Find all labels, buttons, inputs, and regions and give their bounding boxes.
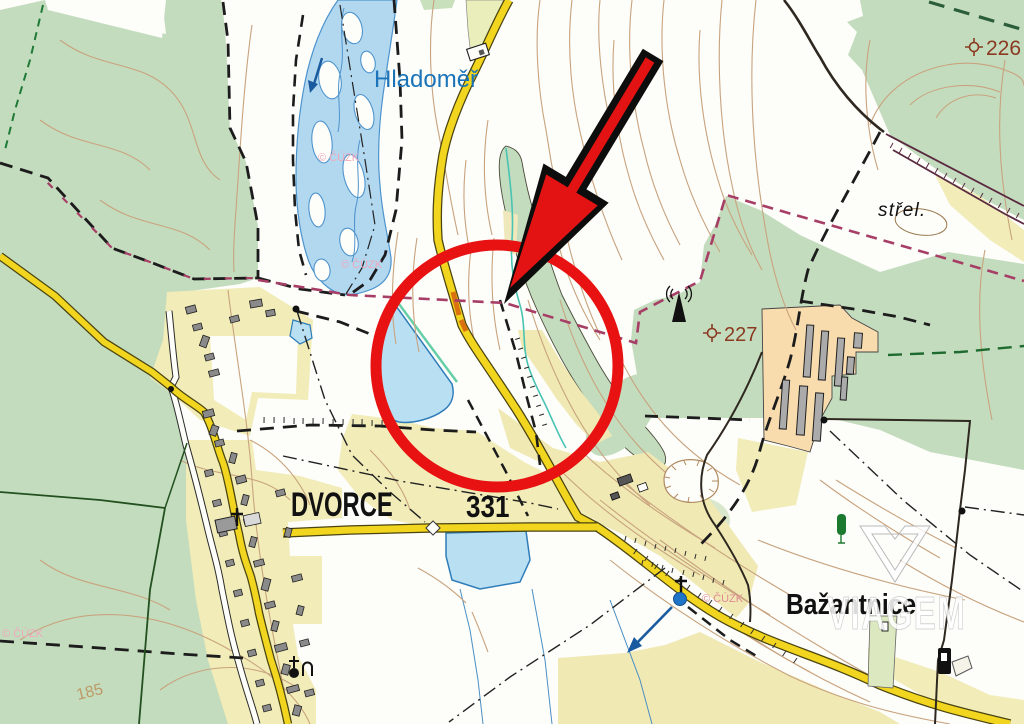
svg-text:© ČÚZK: © ČÚZK	[341, 258, 383, 271]
svg-text:© ČÚZK: © ČÚZK	[702, 592, 744, 605]
svg-text:Hladoměř: Hladoměř	[374, 66, 479, 93]
svg-text:227: 227	[724, 324, 757, 346]
svg-text:střel.: střel.	[878, 200, 926, 221]
svg-text:DVORCE: DVORCE	[291, 486, 393, 524]
svg-text:226: 226	[986, 37, 1021, 60]
svg-text:© ČÚZK: © ČÚZK	[2, 627, 44, 640]
svg-text:VIAGEM: VIAGEM	[827, 589, 966, 639]
svg-text:331: 331	[466, 490, 509, 525]
svg-text:© ČÚZK: © ČÚZK	[318, 151, 360, 164]
